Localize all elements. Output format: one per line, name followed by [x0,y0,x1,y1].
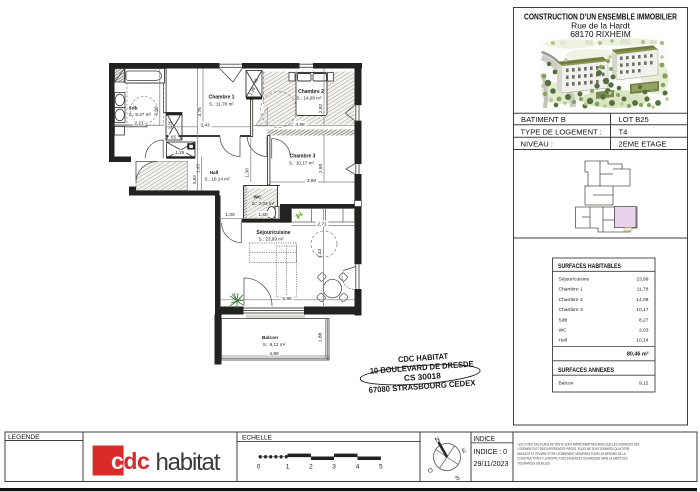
svg-text:80,46 m²: 80,46 m² [627,352,649,358]
svg-text:INDICE : 0: INDICE : 0 [474,447,508,456]
svg-text:INDICE: INDICE [474,436,496,443]
svg-text:Séjour/cuisine: Séjour/cuisine [256,230,290,236]
svg-text:2,71: 2,71 [317,221,327,227]
svg-text:Chambre 1: Chambre 1 [209,95,235,101]
svg-text:LEGENDE: LEGENDE [8,434,40,441]
svg-text:S.: 11,78 m²: S.: 11,78 m² [209,102,234,107]
svg-text:2,82: 2,82 [318,104,324,114]
svg-text:SURFACES HABITABLES: SURFACES HABITABLES [558,263,621,270]
svg-text:Chambre 1: Chambre 1 [559,287,583,293]
svg-text:SURFACES ANNEXES: SURFACES ANNEXES [558,367,614,374]
svg-text:1,43: 1,43 [196,164,201,173]
svg-text:4,80: 4,80 [269,351,279,357]
svg-text:4,43: 4,43 [317,249,323,259]
svg-text:8,27: 8,27 [639,317,649,323]
svg-text:65: 65 [171,135,176,140]
svg-text:T4: T4 [619,127,628,136]
svg-text:1,00: 1,00 [225,212,235,218]
svg-text:S.: 9,12 m²: S.: 9,12 m² [263,342,286,347]
svg-text:5: 5 [379,464,383,471]
svg-text:S.: 23,99 m²: S.: 23,99 m² [258,237,283,242]
svg-text:3,43: 3,43 [200,123,210,129]
svg-text:Chambre 2: Chambre 2 [298,89,324,95]
svg-text:2EME ETAGE: 2EME ETAGE [619,140,667,149]
svg-text:TOLERANCES USUELLES.: TOLERANCES USUELLES. [518,461,551,466]
svg-text:Chambre 3: Chambre 3 [290,154,316,160]
svg-text:1: 1 [286,464,290,471]
svg-text:1,20: 1,20 [168,120,173,129]
svg-text:Chambre 2: Chambre 2 [559,297,583,303]
svg-text:2,03: 2,03 [639,328,649,334]
svg-text:S.: 14,08 m²: S.: 14,08 m² [296,96,321,101]
svg-text:TYPE DE LOGEMENT :: TYPE DE LOGEMENT : [521,127,602,136]
svg-text:11,78: 11,78 [637,287,649,293]
svg-text:3,90: 3,90 [154,106,160,116]
svg-text:5,82: 5,82 [192,175,197,184]
svg-text:Chambre 3: Chambre 3 [559,307,583,313]
svg-text:S.: 10,14 m²: S.: 10,14 m² [204,177,229,182]
svg-text:BATIMENT B: BATIMENT B [521,115,566,124]
svg-text:LOT B25: LOT B25 [619,115,649,124]
svg-text:Hall: Hall [559,338,567,344]
svg-text:1,30: 1,30 [245,168,251,178]
svg-text:2,21: 2,21 [134,120,144,126]
svg-text:1,26: 1,26 [175,150,184,155]
svg-text:0: 0 [257,464,261,471]
svg-text:Sdb: Sdb [129,106,138,112]
svg-text:10,17: 10,17 [636,307,649,313]
svg-text:4: 4 [356,464,360,471]
svg-text:2,90: 2,90 [318,164,324,174]
svg-text:3,76: 3,76 [197,107,203,117]
svg-text:S.: 2,03 m²: S.: 2,03 m² [252,201,275,206]
svg-text:Balcon: Balcon [559,381,574,387]
svg-text:1,88: 1,88 [318,333,324,343]
svg-text:habitat: habitat [156,449,221,476]
svg-text:S.: 8,27 m²: S.: 8,27 m² [129,112,152,117]
svg-text:10,14: 10,14 [636,338,649,344]
svg-text:WC: WC [254,195,263,201]
svg-text:S.: 10,17 m²: S.: 10,17 m² [289,161,314,166]
svg-text:Sdb: Sdb [559,317,568,323]
svg-text:14,08: 14,08 [636,297,649,303]
svg-text:5,86: 5,86 [282,296,292,302]
svg-text:Séjour/cuisine: Séjour/cuisine [559,277,590,283]
svg-text:23,99: 23,99 [636,277,649,283]
svg-text:WC: WC [559,328,568,334]
svg-text:4,88: 4,88 [295,122,305,128]
svg-text:2: 2 [309,464,313,471]
svg-text:29/11/2023: 29/11/2023 [474,459,509,468]
svg-text:9,12: 9,12 [639,381,649,387]
svg-text:3,60: 3,60 [307,178,317,184]
svg-text:68170 RIXHEIM: 68170 RIXHEIM [570,29,631,39]
svg-text:Hall: Hall [210,170,219,176]
svg-text:ECHELLE: ECHELLE [242,434,273,441]
svg-text:cdc: cdc [111,448,150,474]
svg-text:3: 3 [332,464,336,471]
svg-text:NIVEAU :: NIVEAU : [521,140,554,149]
svg-text:Balcon: Balcon [262,335,278,341]
svg-text:1,50: 1,50 [258,212,268,218]
